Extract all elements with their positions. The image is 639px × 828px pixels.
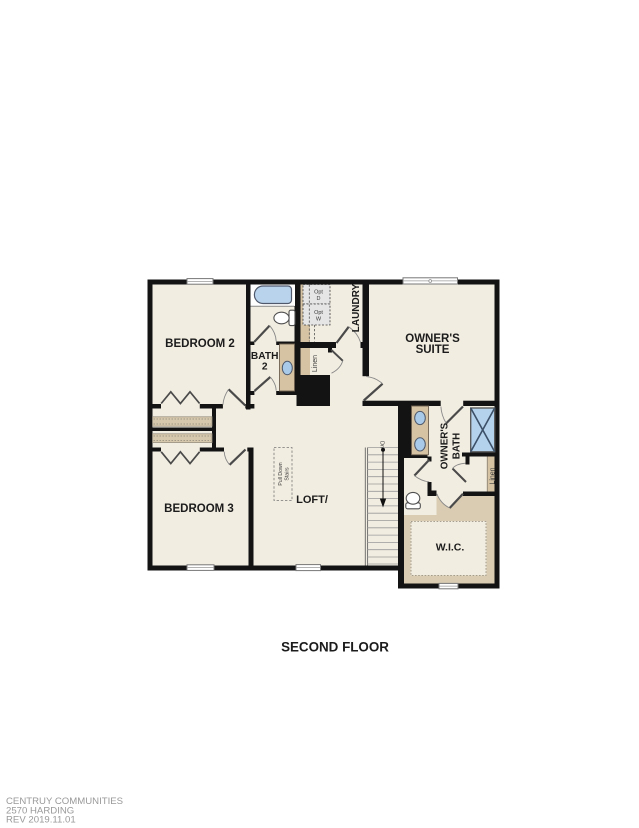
svg-text:BEDROOM 2: BEDROOM 2	[165, 338, 235, 350]
svg-text:BATH: BATH	[251, 351, 279, 362]
svg-text:Linen: Linen	[312, 355, 319, 372]
svg-text:Linen: Linen	[490, 467, 497, 484]
svg-text:Pull Down: Pull Down	[278, 462, 284, 485]
svg-text:SECOND FLOOR: SECOND FLOOR	[281, 640, 389, 655]
svg-text:BATH: BATH	[451, 433, 462, 459]
svg-text:LOFT/: LOFT/	[296, 494, 328, 506]
svg-text:OWNER'S: OWNER'S	[440, 422, 451, 469]
svg-text:Opt: Opt	[314, 289, 323, 295]
svg-text:Opt: Opt	[314, 310, 323, 316]
svg-text:OWNER'S: OWNER'S	[405, 333, 460, 345]
svg-text:LAUNDRY: LAUNDRY	[351, 283, 362, 332]
svg-text:BEDROOM 3: BEDROOM 3	[164, 503, 234, 515]
svg-text:W: W	[316, 316, 322, 322]
svg-text:Stairs: Stairs	[284, 467, 290, 481]
svg-text:D: D	[317, 296, 321, 302]
svg-text:2: 2	[262, 362, 268, 373]
svg-text:REV 2019.11.01: REV 2019.11.01	[6, 815, 76, 826]
svg-text:Dn: Dn	[378, 441, 384, 448]
svg-text:W.I.C.: W.I.C.	[436, 542, 465, 554]
svg-text:SUITE: SUITE	[416, 344, 450, 356]
